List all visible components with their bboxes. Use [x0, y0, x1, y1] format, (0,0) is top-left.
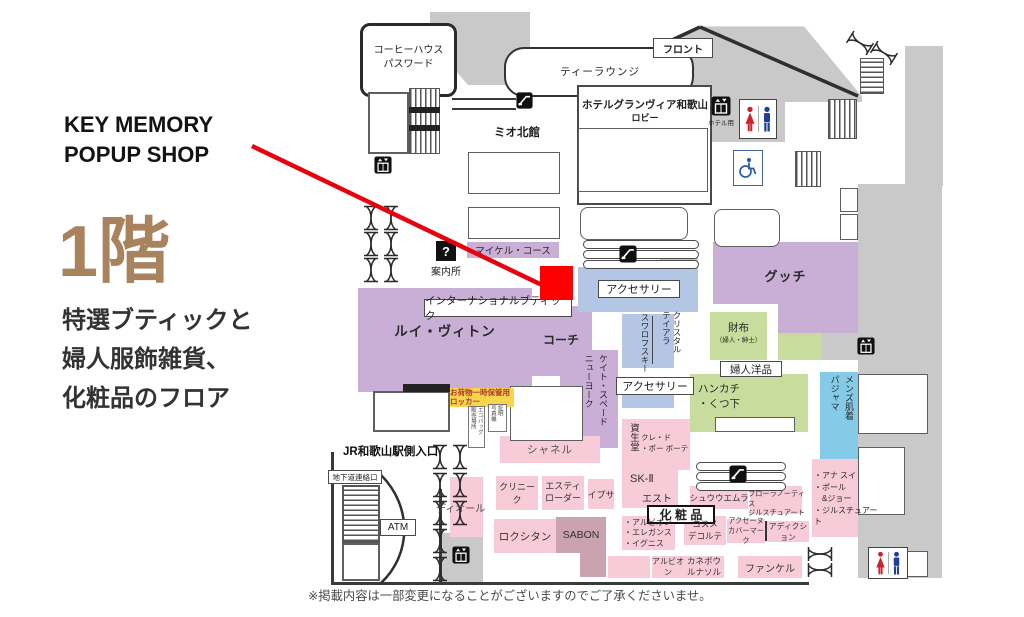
popup-shop-marker [540, 266, 573, 300]
floor-map-page: ホテル用 ? 案内所 フロント インターナショナルブティック アクセサリー アク… [0, 0, 1024, 617]
pointer-line [0, 0, 1024, 617]
